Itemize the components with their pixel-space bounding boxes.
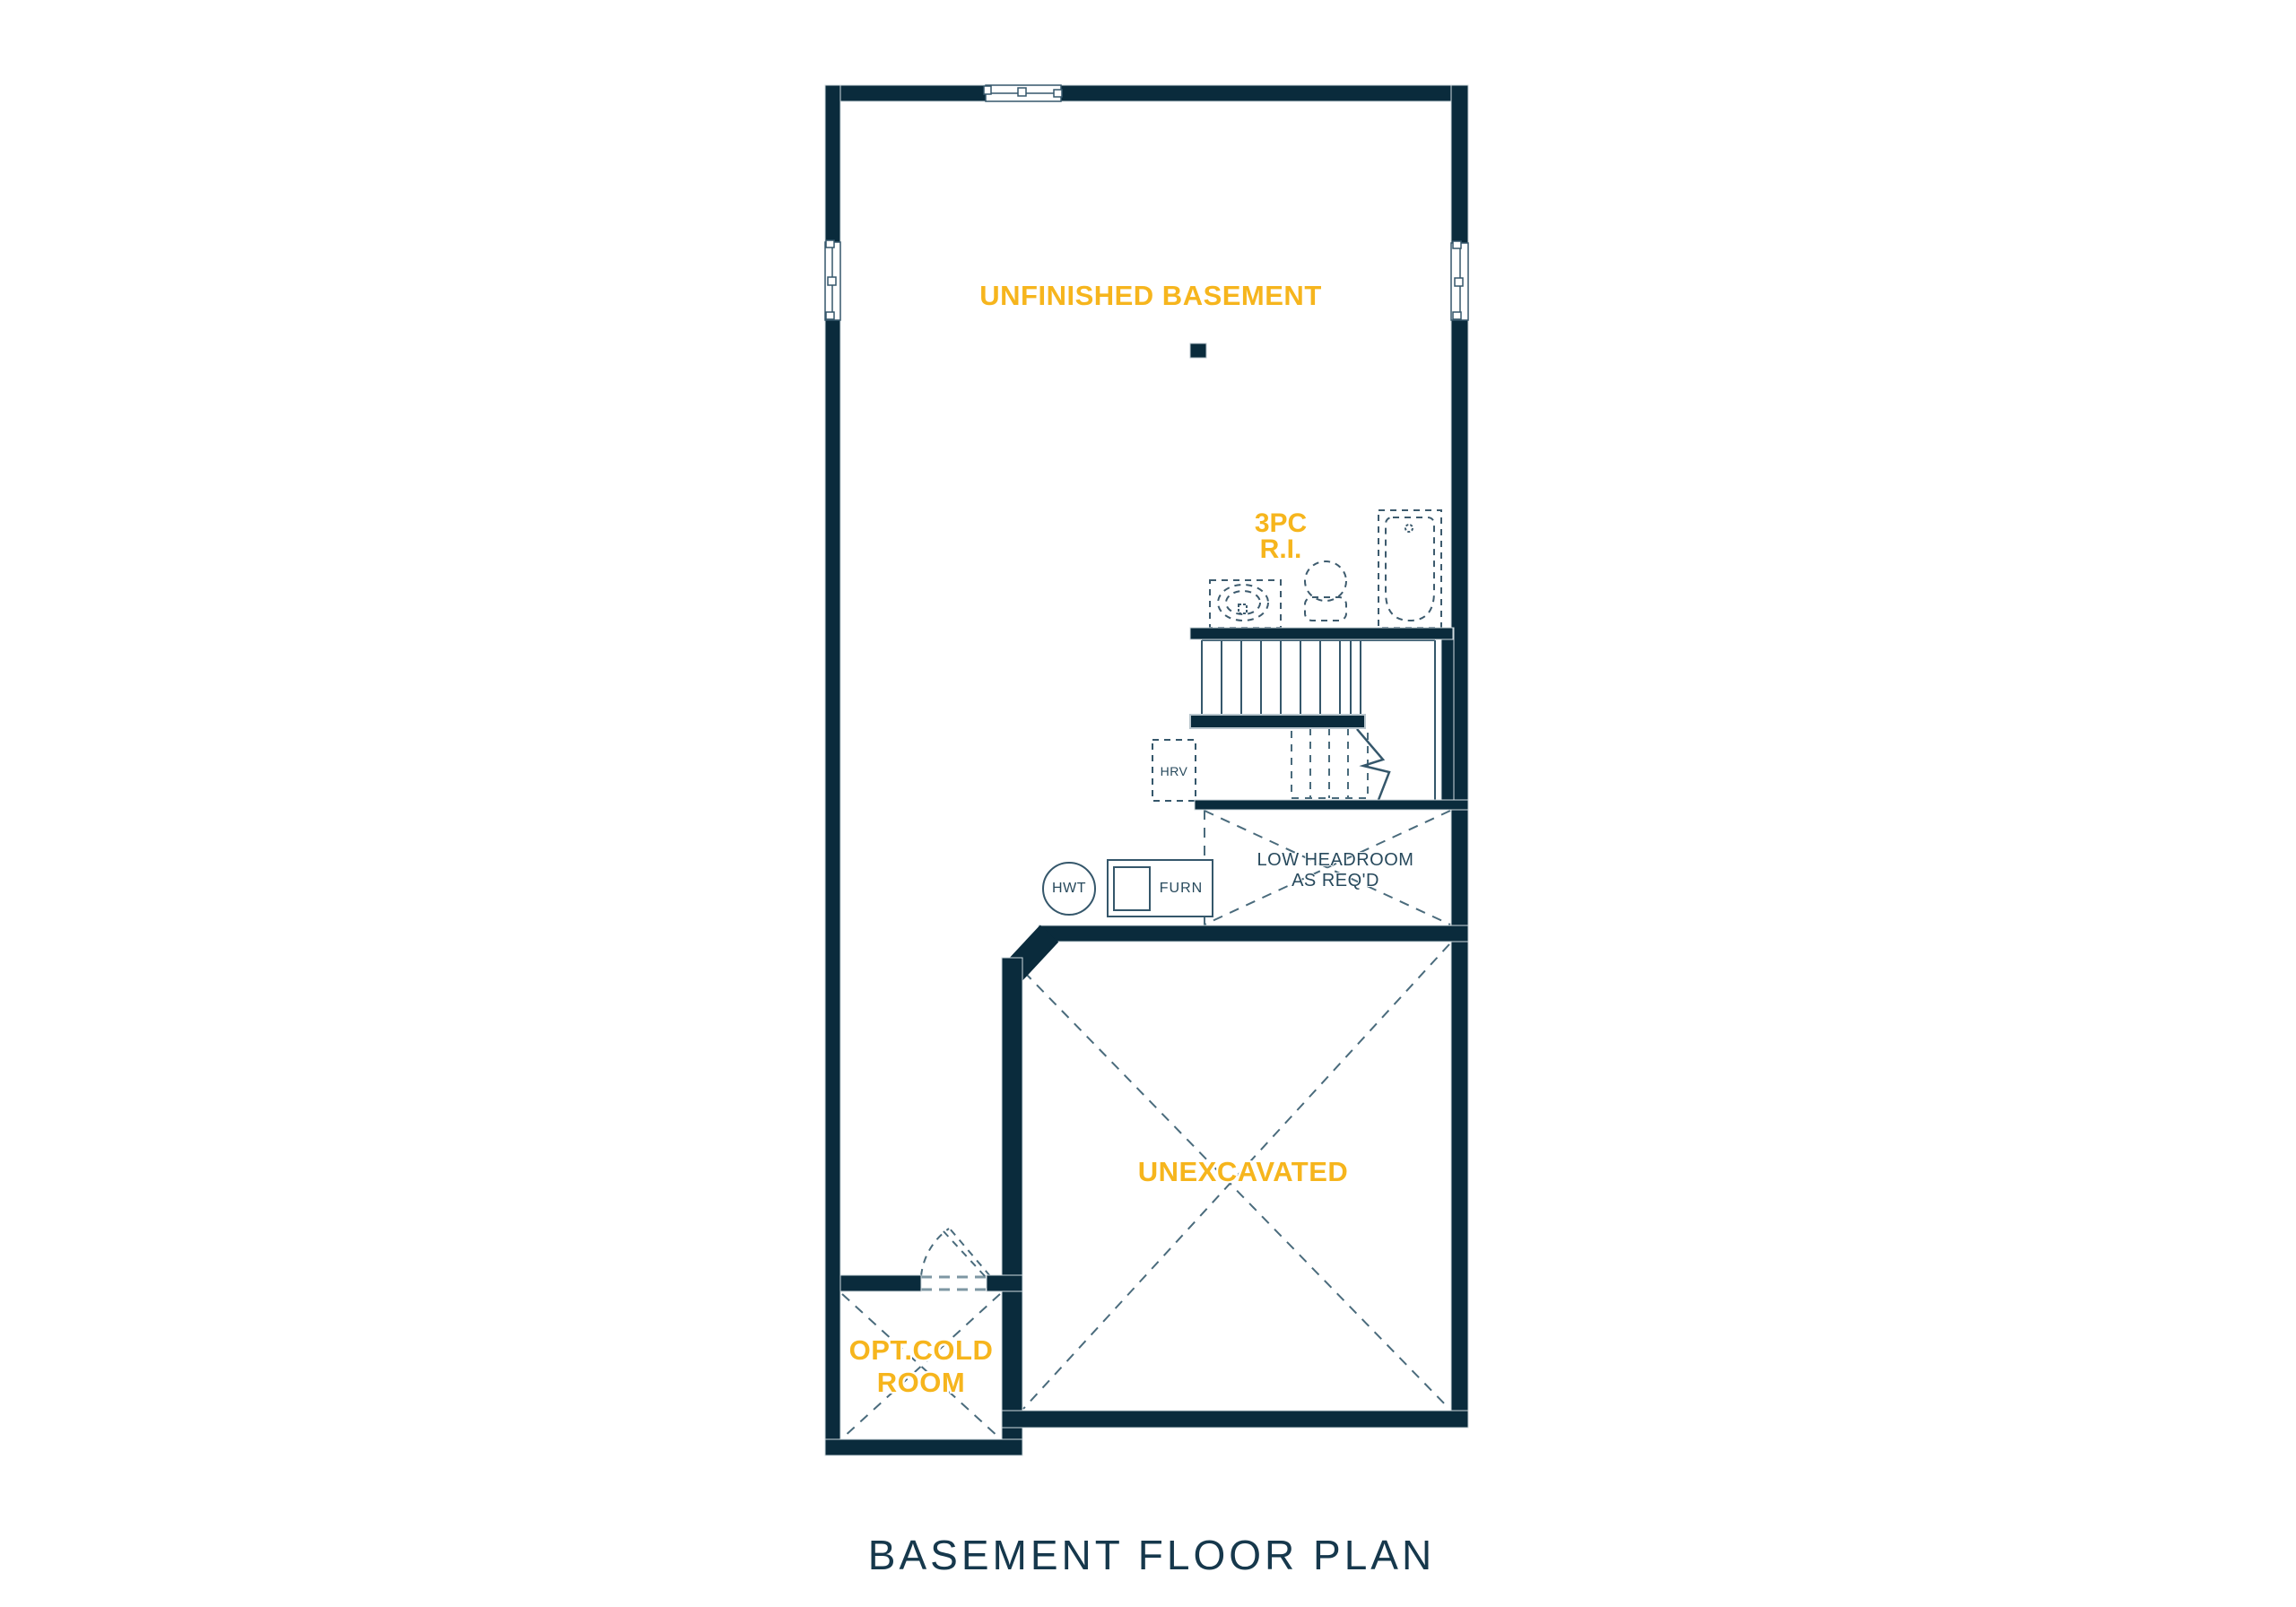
label-cold-room-line2: ROOM [849, 1367, 994, 1399]
wall-bathroom-stairs [1190, 628, 1453, 639]
label-unfinished-basement: UNFINISHED BASEMENT [979, 280, 1322, 312]
label-cold-room-line1: OPT.COLD [849, 1334, 994, 1367]
wall-cold-room-top-left [840, 1275, 921, 1291]
window-right [1451, 241, 1468, 320]
sink-fixture [1210, 580, 1281, 628]
wall-cold-room-top-right [987, 1275, 1022, 1291]
label-hrv: HRV [1161, 764, 1188, 778]
unexcavated-cross-line [1024, 972, 1449, 1409]
wall-unexcavated-top [1039, 925, 1468, 942]
label-bath-rough-in-line2: R.I. [1255, 536, 1307, 562]
plan-title: BASEMENT FLOOR PLAN [868, 1531, 1435, 1579]
toilet-fixture [1305, 561, 1346, 621]
label-cold-room: OPT.COLD ROOM [849, 1334, 994, 1399]
window-left [825, 240, 840, 320]
wall-unexcavated-bottom [1002, 1411, 1468, 1428]
door-leaf [949, 1228, 990, 1276]
floor-plan-drawing [0, 0, 2296, 1607]
label-unexcavated: UNEXCAVATED [1138, 1156, 1349, 1188]
stair-break-line [1357, 729, 1389, 800]
stair-half-wall [1190, 715, 1365, 728]
bathroom-fixtures [1210, 510, 1441, 628]
structural-post [1190, 343, 1206, 358]
window-top [984, 85, 1062, 101]
label-low-headroom: LOW HEADROOM AS REQ'D [1257, 850, 1414, 891]
label-hwt: HWT [1052, 881, 1086, 897]
wall-unexcavated-left [1002, 958, 1022, 1455]
floor-plan-page: UNFINISHED BASEMENT 3PC R.I. HRV HWT FUR… [0, 0, 2296, 1607]
label-low-headroom-line1: LOW HEADROOM [1257, 850, 1414, 871]
wall-top [825, 85, 1468, 101]
label-bath-rough-in-line1: 3PC [1255, 510, 1307, 536]
door-swing-arc [921, 1229, 949, 1276]
label-bath-rough-in: 3PC R.I. [1255, 510, 1307, 562]
bathtub-fixture [1378, 510, 1441, 628]
label-furnace: FURN [1160, 881, 1203, 897]
cold-room-door [921, 1228, 990, 1290]
wall-below-stairs [1195, 800, 1468, 810]
wall-stairwell-right [1441, 628, 1454, 810]
label-low-headroom-line2: AS REQ'D [1257, 871, 1414, 891]
door-leaf [943, 1230, 985, 1276]
furnace-inner-box [1114, 867, 1150, 910]
wall-cold-room-bottom [825, 1439, 1022, 1455]
